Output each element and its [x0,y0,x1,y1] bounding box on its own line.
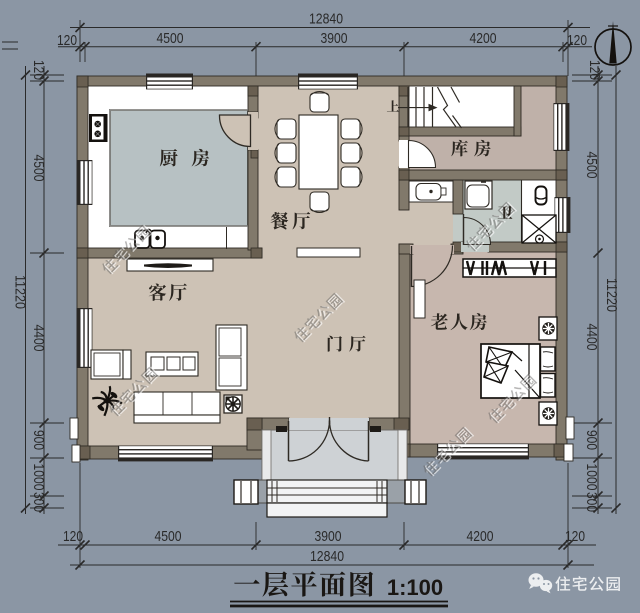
svg-text:120: 120 [57,32,77,49]
svg-text:900: 900 [30,430,47,450]
svg-text:4400: 4400 [583,324,600,351]
svg-text:120: 120 [586,60,603,80]
svg-text:4500: 4500 [155,528,182,545]
svg-text:4500: 4500 [583,152,600,179]
svg-text:4200: 4200 [470,30,497,47]
svg-text:300: 300 [30,492,47,512]
svg-text:4500: 4500 [157,30,184,47]
svg-text:3900: 3900 [315,528,342,545]
svg-text:1000: 1000 [583,464,600,491]
svg-text:4200: 4200 [467,528,494,545]
svg-text:1:100: 1:100 [387,575,443,600]
svg-text:12840: 12840 [309,11,343,28]
svg-text:300: 300 [583,492,600,512]
svg-text:11220: 11220 [603,278,620,312]
svg-text:900: 900 [583,430,600,450]
svg-text:4400: 4400 [30,325,47,352]
svg-text:4500: 4500 [30,155,47,182]
svg-text:11220: 11220 [12,275,29,309]
svg-text:1000: 1000 [30,464,47,491]
svg-text:120: 120 [567,32,587,49]
svg-text:12840: 12840 [310,548,344,565]
svg-text:3900: 3900 [321,30,348,47]
svg-text:120: 120 [30,60,47,80]
